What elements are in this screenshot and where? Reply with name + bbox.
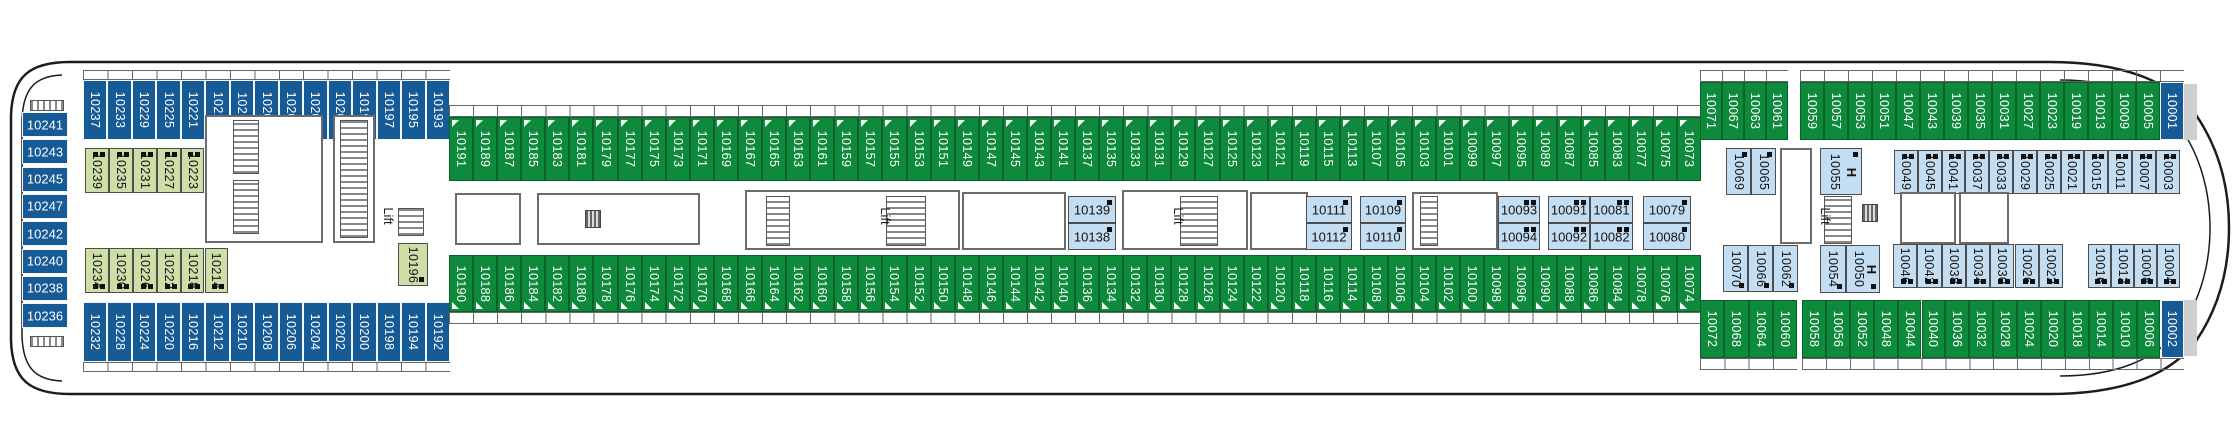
cabin-number: 10176 xyxy=(623,265,637,302)
berth-triangle-icon xyxy=(837,120,844,127)
cabin-number: 10049 xyxy=(1899,154,1913,191)
upper-berth-icon xyxy=(219,284,224,289)
cabin-10200: 10200 xyxy=(352,302,376,362)
cabin-10026: 10026 xyxy=(2015,244,2039,288)
cabin-number: 10228 xyxy=(113,314,127,351)
upper-berth-icon xyxy=(1682,227,1687,232)
berth-triangle-icon xyxy=(1150,120,1157,127)
cabin-number: 10197 xyxy=(382,92,396,129)
cabin-10151: 10151 xyxy=(931,117,955,181)
upper-berth-icon xyxy=(2054,279,2059,284)
berth-triangle-icon xyxy=(765,302,772,309)
upper-berth-icon xyxy=(1397,200,1402,205)
cabin-10214: 10214 xyxy=(205,248,229,293)
cabin-10167: 10167 xyxy=(738,117,762,181)
deck-plan: 1023710233102291022510221102151021110207… xyxy=(0,0,2232,440)
upper-berth-icon xyxy=(2030,279,2035,284)
cabin-10220: 10220 xyxy=(156,302,180,362)
cabin-10159: 10159 xyxy=(834,117,858,181)
cabin-10133: 10133 xyxy=(1123,117,1147,181)
upper-berth-icon xyxy=(1998,279,2003,284)
upper-berth-icon xyxy=(1837,284,1842,289)
berth-triangle-icon xyxy=(717,120,724,127)
cabin-10006: 10006 xyxy=(2137,300,2161,358)
cabin-10189: 10189 xyxy=(473,117,497,181)
cabin-10113: 10113 xyxy=(1340,117,1364,181)
cabin-number: 10184 xyxy=(526,265,540,302)
cabin-number: 10041 xyxy=(1946,154,1960,191)
cabin-10162: 10162 xyxy=(786,255,810,312)
cabin-number: 10003 xyxy=(2161,154,2175,191)
cabin-10109: 10109 xyxy=(1360,196,1406,223)
upper-berth-icon xyxy=(172,152,177,157)
cabin-10212: 10212 xyxy=(205,302,229,362)
cabin-number: 10192 xyxy=(431,314,445,351)
cabin-number: 10243 xyxy=(23,144,67,159)
berth-triangle-icon xyxy=(1295,120,1302,127)
cabin-10171: 10171 xyxy=(690,117,714,181)
cabin-10080: 10080 xyxy=(1643,223,1691,250)
upper-berth-icon xyxy=(2075,154,2080,159)
cabin-10218: 10218 xyxy=(181,248,205,293)
cabin-number: 10078 xyxy=(1634,265,1648,302)
cabin-number: 10099 xyxy=(1465,131,1479,168)
cabin-10128: 10128 xyxy=(1171,255,1195,312)
cabin-number: 10028 xyxy=(1998,311,2012,348)
cabin-10160: 10160 xyxy=(810,255,834,312)
upper-berth-icon xyxy=(1908,279,1913,284)
cabin-10111: 10111 xyxy=(1306,196,1352,223)
upper-berth-icon xyxy=(2116,154,2121,159)
cabin-10028: 10028 xyxy=(1993,300,2017,358)
cabin-10192: 10192 xyxy=(426,302,450,362)
cabin-10144: 10144 xyxy=(1003,255,1027,312)
stairs-icon xyxy=(233,180,259,234)
cabin-number: 10062 xyxy=(1779,250,1793,287)
cabin-10150: 10150 xyxy=(931,255,955,312)
cabin-10064: 10064 xyxy=(1749,300,1773,358)
cabin-number: 10113 xyxy=(1345,131,1359,167)
upper-berth-icon xyxy=(1980,154,1985,159)
cabin-10097: 10097 xyxy=(1484,117,1508,181)
cabin-number: 10075 xyxy=(1658,131,1672,168)
cabin-number: 10144 xyxy=(1008,265,1022,302)
cabin-number: 10153 xyxy=(912,131,926,168)
berth-triangle-icon xyxy=(1367,302,1374,309)
cabin-number: 10053 xyxy=(1853,93,1867,130)
cabin-number: 10130 xyxy=(1152,265,1166,302)
interior-room xyxy=(1900,192,1956,244)
upper-berth-icon xyxy=(1973,154,1978,159)
berth-triangle-icon xyxy=(548,120,555,127)
berth-triangle-icon xyxy=(1487,120,1494,127)
cabin-number: 10124 xyxy=(1225,265,1239,302)
cabin-number: 10224 xyxy=(137,314,151,351)
upper-berth-icon xyxy=(1902,154,1907,159)
cabin-10118: 10118 xyxy=(1292,255,1316,312)
cabin-number: 10114 xyxy=(1345,266,1359,302)
berth-triangle-icon xyxy=(669,120,676,127)
cabin-10092: 10092 xyxy=(1548,223,1590,250)
upper-berth-icon xyxy=(1682,200,1687,205)
cabin-10116: 10116 xyxy=(1316,255,1340,312)
cabin-number: 10182 xyxy=(550,265,564,302)
cabin-number: 10105 xyxy=(1393,131,1407,168)
cabin-number: 10102 xyxy=(1441,265,1455,302)
berth-triangle-icon xyxy=(1006,120,1013,127)
cabin-10033: 10033 xyxy=(1989,150,2013,194)
cabin-number: 10155 xyxy=(887,131,901,168)
cabin-number: 10100 xyxy=(1465,265,1479,302)
lift-label: Lift xyxy=(1170,196,1186,236)
berth-triangle-icon xyxy=(789,302,796,309)
upper-berth-icon xyxy=(1901,279,1906,284)
hull-cap xyxy=(2184,300,2197,356)
upper-berth-icon xyxy=(172,284,177,289)
cabin-number: 10025 xyxy=(2042,154,2056,191)
upper-berth-icon xyxy=(1524,227,1529,232)
cabin-10134: 10134 xyxy=(1099,255,1123,312)
cabin-number: 10073 xyxy=(1682,131,1696,168)
cabin-number: 10101 xyxy=(1441,131,1455,168)
cabin-number: 10019 xyxy=(2069,93,2083,130)
upper-berth-icon xyxy=(2023,279,2028,284)
cabin-10016: 10016 xyxy=(2088,244,2111,288)
cabin-10110: 10110 xyxy=(1360,223,1406,250)
cabin-10148: 10148 xyxy=(955,255,979,312)
upper-berth-icon xyxy=(93,284,98,289)
cabin-10222: 10222 xyxy=(157,248,181,293)
cabin-10029: 10029 xyxy=(2013,150,2037,194)
cabin-number: 10096 xyxy=(1514,265,1528,302)
cabin-10185: 10185 xyxy=(521,117,545,181)
berth-triangle-icon xyxy=(1030,302,1037,309)
cabin-10247: 10247 xyxy=(22,194,68,219)
cabin-number: 10181 xyxy=(574,131,588,168)
berth-triangle-icon xyxy=(596,120,603,127)
interior-room xyxy=(205,115,323,243)
cabin-number: 10134 xyxy=(1104,265,1118,302)
upper-berth-icon xyxy=(2068,154,2073,159)
upper-berth-icon xyxy=(2092,154,2097,159)
cabin-number: 10095 xyxy=(1514,131,1528,168)
cabin-10050: 10050H xyxy=(1846,245,1880,293)
cabin-10058: 10058 xyxy=(1802,300,1826,358)
balcony-divider-strip xyxy=(1800,70,2184,82)
cabin-10152: 10152 xyxy=(907,255,931,312)
cabin-10169: 10169 xyxy=(714,117,738,181)
berth-triangle-icon xyxy=(621,120,628,127)
cabin-number: 10204 xyxy=(308,314,322,351)
berth-triangle-icon xyxy=(1632,120,1639,127)
cabin-number: 10118 xyxy=(1297,266,1311,302)
cabin-10210: 10210 xyxy=(230,302,254,362)
cabin-10007: 10007 xyxy=(2132,150,2156,194)
cabin-number: 10128 xyxy=(1176,265,1190,302)
cabin-10123: 10123 xyxy=(1244,117,1268,181)
cabin-number: 10063 xyxy=(1748,93,1762,130)
cabin-number: 10164 xyxy=(767,265,781,302)
cabin-10023: 10023 xyxy=(2040,82,2064,140)
cabin-number: 10193 xyxy=(431,92,445,129)
cabin-10182: 10182 xyxy=(545,255,569,312)
upper-berth-icon xyxy=(212,284,217,289)
cabin-number: 10208 xyxy=(260,314,274,351)
berth-triangle-icon xyxy=(645,120,652,127)
cabin-number: 10151 xyxy=(936,131,950,168)
cabin-number: 10015 xyxy=(2089,154,2103,191)
cabin-10019: 10019 xyxy=(2064,82,2088,140)
cabin-number: 10089 xyxy=(1538,131,1552,168)
cabin-10142: 10142 xyxy=(1027,255,1051,312)
cabin-number: 10196 xyxy=(406,246,420,283)
cabin-number: 10178 xyxy=(599,265,613,302)
cabin-10197: 10197 xyxy=(377,80,401,140)
stairs-icon xyxy=(766,196,790,246)
cabin-10237: 10237 xyxy=(83,80,107,140)
stairs-icon xyxy=(340,120,368,238)
cabin-10235: 10235 xyxy=(109,148,133,193)
cabin-10191: 10191 xyxy=(449,117,473,181)
berth-triangle-icon xyxy=(1536,302,1543,309)
cabin-number: 10167 xyxy=(743,131,757,168)
upper-berth-icon xyxy=(1789,283,1794,288)
berth-triangle-icon xyxy=(1415,120,1422,127)
berth-triangle-icon xyxy=(1271,120,1278,127)
upper-berth-icon xyxy=(2045,154,2050,159)
upper-berth-icon xyxy=(2140,154,2145,159)
cabin-number: 10104 xyxy=(1417,265,1431,302)
berth-triangle-icon xyxy=(1487,302,1494,309)
berth-triangle-icon xyxy=(1391,120,1398,127)
cabin-10126: 10126 xyxy=(1195,255,1219,312)
upper-berth-icon xyxy=(1624,227,1629,232)
cabin-number: 10165 xyxy=(767,131,781,168)
berth-triangle-icon xyxy=(885,302,892,309)
upper-berth-icon xyxy=(1742,152,1747,157)
berth-triangle-icon xyxy=(910,120,917,127)
berth-triangle-icon xyxy=(1271,302,1278,309)
cabin-number: 10180 xyxy=(574,265,588,302)
upper-berth-icon xyxy=(2164,279,2169,284)
cabin-number: 10068 xyxy=(1729,311,1743,348)
cabin-10085: 10085 xyxy=(1581,117,1605,181)
cabin-10047: 10047 xyxy=(1896,82,1920,140)
berth-triangle-icon xyxy=(1632,302,1639,309)
cabin-number: 10064 xyxy=(1754,311,1768,348)
cabin-number: 10077 xyxy=(1634,131,1648,168)
cabin-number: 10020 xyxy=(2046,311,2060,348)
upper-berth-icon xyxy=(117,284,122,289)
cabin-10181: 10181 xyxy=(569,117,593,181)
cabin-number: 10163 xyxy=(791,131,805,168)
cabin-10022: 10022 xyxy=(2039,244,2063,288)
cabin-10198: 10198 xyxy=(377,302,401,362)
cabin-number: 10147 xyxy=(984,131,998,168)
cabin-number: 10031 xyxy=(1997,93,2011,130)
berth-triangle-icon xyxy=(1367,120,1374,127)
cabin-number: 10088 xyxy=(1562,265,1576,302)
cabin-10155: 10155 xyxy=(882,117,906,181)
upper-berth-icon xyxy=(2005,279,2010,284)
upper-berth-icon xyxy=(165,284,170,289)
handicap-label: H xyxy=(1844,168,1859,177)
upper-berth-icon xyxy=(1933,154,1938,159)
balcony-divider-strip xyxy=(449,312,1701,324)
berth-triangle-icon xyxy=(645,302,652,309)
cabin-10039: 10039 xyxy=(1944,82,1968,140)
cabin-10090: 10090 xyxy=(1533,255,1557,312)
berth-triangle-icon xyxy=(500,302,507,309)
cabin-number: 10103 xyxy=(1417,131,1431,168)
cabin-number: 10236 xyxy=(23,308,67,323)
cabin-number: 10166 xyxy=(743,265,757,302)
berth-triangle-icon xyxy=(1078,302,1085,309)
cabin-10239: 10239 xyxy=(85,148,109,193)
cabin-10005: 10005 xyxy=(2136,82,2160,140)
upper-berth-icon xyxy=(2171,279,2176,284)
berth-triangle-icon xyxy=(548,302,555,309)
berth-triangle-icon xyxy=(500,120,507,127)
cabin-10147: 10147 xyxy=(979,117,1003,181)
cabin-number: 10115 xyxy=(1321,131,1335,167)
cabin-10079: 10079 xyxy=(1643,196,1691,223)
upper-berth-icon xyxy=(1950,279,1955,284)
cabin-10104: 10104 xyxy=(1412,255,1436,312)
upper-berth-icon xyxy=(2004,154,2009,159)
cabin-10194: 10194 xyxy=(401,302,425,362)
cabin-number: 10187 xyxy=(502,131,516,168)
cabin-10186: 10186 xyxy=(497,255,521,312)
cabin-number: 10023 xyxy=(2045,93,2059,130)
cabin-number: 10174 xyxy=(647,265,661,302)
cabin-10040: 10040 xyxy=(1922,300,1946,358)
cabin-10037: 10037 xyxy=(1965,150,1989,194)
cabin-number: 10186 xyxy=(502,265,516,302)
cabin-10132: 10132 xyxy=(1123,255,1147,312)
cabin-10084: 10084 xyxy=(1605,255,1629,312)
cabin-10232: 10232 xyxy=(83,302,107,362)
cabin-number: 10198 xyxy=(382,314,396,351)
cabin-number: 10074 xyxy=(1682,265,1696,302)
upper-berth-icon xyxy=(1956,154,1961,159)
cabin-number: 10106 xyxy=(1393,265,1407,302)
berth-triangle-icon xyxy=(1512,120,1519,127)
cabin-10187: 10187 xyxy=(497,117,521,181)
cabin-number: 10039 xyxy=(1949,93,1963,130)
upper-berth-icon xyxy=(1933,279,1938,284)
upper-berth-icon xyxy=(2028,154,2033,159)
berth-triangle-icon xyxy=(1656,302,1663,309)
cabin-number: 10051 xyxy=(1877,93,1891,130)
cabin-10014: 10014 xyxy=(2089,300,2113,358)
berth-triangle-icon xyxy=(1512,302,1519,309)
cabin-10195: 10195 xyxy=(401,80,425,140)
upper-berth-icon xyxy=(124,284,129,289)
upper-berth-icon xyxy=(100,284,105,289)
upper-berth-icon xyxy=(188,284,193,289)
cabin-number: 10159 xyxy=(839,131,853,168)
cabin-number: 10002 xyxy=(2165,311,2179,348)
berth-triangle-icon xyxy=(1319,120,1326,127)
interior-room xyxy=(537,193,700,245)
cabin-number: 10005 xyxy=(2141,93,2155,130)
cabin-number: 10120 xyxy=(1273,265,1287,302)
cabin-10042: 10042 xyxy=(1917,244,1941,288)
cabin-10100: 10100 xyxy=(1460,255,1484,312)
cabin-10153: 10153 xyxy=(907,117,931,181)
cabin-number: 10145 xyxy=(1008,131,1022,168)
cabin-10208: 10208 xyxy=(254,302,278,362)
cabin-10206: 10206 xyxy=(279,302,303,362)
service-icon xyxy=(1862,204,1878,222)
cabin-10164: 10164 xyxy=(762,255,786,312)
cabin-10172: 10172 xyxy=(666,255,690,312)
berth-triangle-icon xyxy=(1463,302,1470,309)
cabin-10056: 10056 xyxy=(1826,300,1850,358)
lift-label: Lift xyxy=(877,196,893,236)
upper-berth-icon xyxy=(2147,154,2152,159)
cabin-10122: 10122 xyxy=(1244,255,1268,312)
upper-berth-icon xyxy=(117,152,122,157)
upper-berth-icon xyxy=(1926,154,1931,159)
cabin-number: 10065 xyxy=(1757,153,1771,190)
berth-triangle-icon xyxy=(1656,120,1663,127)
cabin-number: 10013 xyxy=(2093,93,2107,130)
cabin-10139: 10139 xyxy=(1068,196,1116,223)
berth-triangle-icon xyxy=(1126,120,1133,127)
berth-triangle-icon xyxy=(1608,120,1615,127)
berth-triangle-icon xyxy=(934,302,941,309)
cabin-number: 10071 xyxy=(1704,93,1718,130)
cabin-10242: 10242 xyxy=(22,221,68,246)
cabin-number: 10160 xyxy=(815,265,829,302)
cabin-10114: 10114 xyxy=(1340,255,1364,312)
cabin-10034: 10034 xyxy=(1966,244,1990,288)
upper-berth-icon xyxy=(1343,200,1348,205)
upper-berth-icon xyxy=(2125,279,2130,284)
cabin-number: 10183 xyxy=(550,131,564,168)
berth-triangle-icon xyxy=(1536,120,1543,127)
cabin-10009: 10009 xyxy=(2112,82,2136,140)
berth-triangle-icon xyxy=(982,302,989,309)
cabin-number: 10220 xyxy=(162,314,176,351)
cabin-number: 10122 xyxy=(1249,265,1263,302)
cabin-number: 10125 xyxy=(1225,131,1239,168)
cabin-10158: 10158 xyxy=(834,255,858,312)
cabin-number: 10247 xyxy=(23,199,67,214)
cabin-10087: 10087 xyxy=(1557,117,1581,181)
berth-triangle-icon xyxy=(1054,120,1061,127)
stairs-icon xyxy=(398,208,424,236)
cabin-10075: 10075 xyxy=(1653,117,1677,181)
cabin-10024: 10024 xyxy=(2017,300,2041,358)
cabin-10141: 10141 xyxy=(1051,117,1075,181)
cabin-10230: 10230 xyxy=(109,248,133,293)
upper-berth-icon xyxy=(141,152,146,157)
cabin-10223: 10223 xyxy=(181,148,205,193)
cabin-number: 10057 xyxy=(1829,93,1843,130)
upper-berth-icon xyxy=(1617,227,1622,232)
cabin-10098: 10098 xyxy=(1484,255,1508,312)
berth-triangle-icon xyxy=(1608,302,1615,309)
upper-berth-icon xyxy=(2141,279,2146,284)
upper-berth-icon xyxy=(1617,200,1622,205)
upper-berth-icon xyxy=(188,152,193,157)
berth-triangle-icon xyxy=(1174,302,1181,309)
cabin-10027: 10027 xyxy=(2016,82,2040,140)
interior-room xyxy=(1780,148,1812,244)
